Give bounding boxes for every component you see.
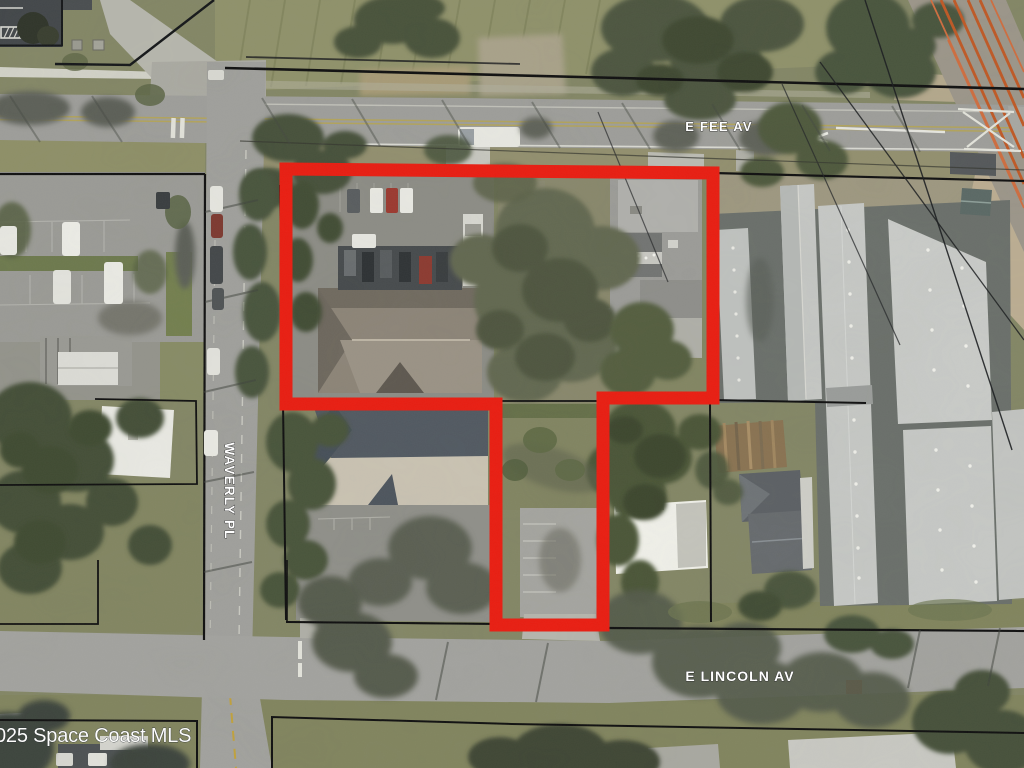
svg-text:E FEE AV: E FEE AV [685,119,752,134]
svg-text:025 Space Coast MLS: 025 Space Coast MLS [0,725,191,747]
svg-text:WAVERLY PL: WAVERLY PL [222,442,237,539]
svg-text:E LINCOLN AV: E LINCOLN AV [685,668,794,684]
